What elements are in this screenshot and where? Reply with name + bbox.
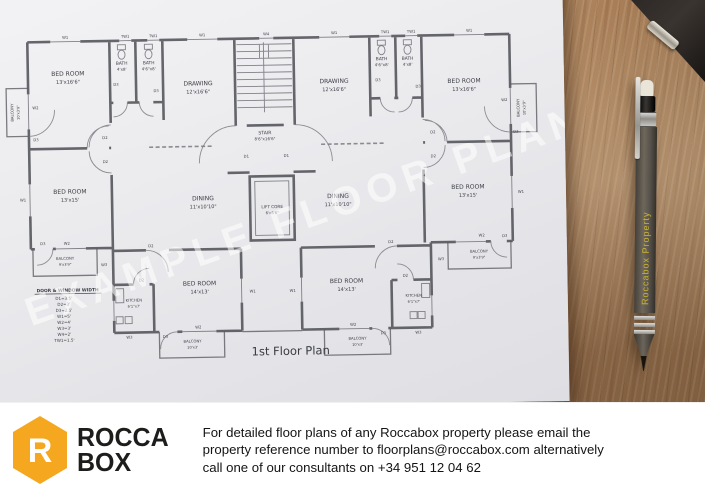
- pencil-ring: [634, 316, 655, 320]
- plan-label: D3: [513, 129, 519, 134]
- plan-label: W3: [415, 330, 422, 335]
- plan-label: 10'x3': [187, 345, 198, 349]
- pencil-clip: [634, 77, 640, 159]
- plan-label: W1: [466, 28, 473, 33]
- plan-label: D2: [403, 273, 409, 278]
- screenshot: BED ROOM13'x16'6"BATH4'x8'BATH4'6"x8'DRA…: [0, 0, 705, 498]
- plan-label: 12'x16'6": [186, 89, 210, 95]
- plan-label: TW1: [380, 29, 390, 34]
- desk-photo: BED ROOM13'x16'6"BATH4'x8'BATH4'6"x8'DRA…: [0, 0, 705, 402]
- plan-label: D3: [153, 88, 159, 93]
- plan-label: BED ROOM: [330, 278, 363, 286]
- plan-label: DRAWING: [183, 80, 213, 88]
- footer-text: For detailed floor plans of any Roccabox…: [203, 424, 604, 475]
- plan-label: W1: [331, 30, 338, 35]
- pencil-collar: [638, 96, 655, 112]
- plan-label: TW1: [148, 33, 158, 38]
- plan-label: 6'1"x7': [128, 304, 141, 308]
- plan-label: BALCONY: [470, 248, 489, 253]
- plan-label: D1=3.5': [55, 296, 72, 301]
- floor-plan-svg: BED ROOM13'x16'6"BATH4'x8'BATH4'6"x8'DRA…: [0, 0, 566, 402]
- plan-label: 12'x16'6": [322, 87, 346, 93]
- pencil-brand-text: Roccabox Property: [640, 185, 651, 305]
- plan-label: W1: [199, 32, 206, 37]
- plan-label: D3: [375, 77, 381, 82]
- plan-label: 8'6"x16'6": [254, 136, 275, 141]
- plan-label: 11'x10'10": [325, 202, 352, 208]
- floor-plan-paper: BED ROOM13'x16'6"BATH4'x8'BATH4'6"x8'DRA…: [0, 0, 570, 402]
- plan-label: D3: [163, 334, 169, 339]
- plan-label: KITCHEN: [126, 297, 143, 302]
- pencil-ring: [633, 330, 654, 334]
- plan-label: D1: [244, 154, 250, 159]
- plan-label: D3: [502, 233, 508, 238]
- plan-label: D3: [381, 330, 387, 335]
- plan-label: D2: [148, 243, 154, 248]
- beam-lines: [149, 143, 385, 147]
- plan-label: 14'x13': [190, 289, 209, 295]
- plan-label: D2: [103, 159, 109, 164]
- plan-label: 9'x3'9": [473, 255, 486, 259]
- footer-bar: R ROCCA BOX For detailed floor plans of …: [0, 402, 705, 498]
- plan-label: 14'x13': [337, 287, 356, 293]
- plan-label: W2: [350, 322, 357, 327]
- footer-text-line3: call one of our consultants on +34 951 1…: [203, 459, 604, 476]
- plan-label: W1: [250, 288, 257, 293]
- plan-label: W2: [64, 241, 71, 246]
- plan-label: 10'x3': [352, 343, 363, 347]
- plan-label: 13'x16'6": [56, 79, 80, 85]
- kitchen-icons: [116, 283, 431, 323]
- plan-label: TW1: [120, 34, 130, 39]
- plan-label: 10'x3'9": [522, 100, 526, 115]
- plan-label: DINING: [327, 193, 349, 200]
- plan-label: DINING: [192, 195, 214, 202]
- pencil-body: Roccabox Property: [634, 127, 657, 313]
- plan-label: DOOR & WINDOW WIDTH: [37, 287, 99, 294]
- plan-label: 4'6"x8': [375, 62, 389, 67]
- plan-label: D2=3': [57, 302, 70, 307]
- plan-labels: BED ROOM13'x16'6"BATH4'x8'BATH4'6"x8'DRA…: [8, 27, 530, 353]
- plan-label: DRAWING: [319, 78, 349, 86]
- plan-label: LIFT CORE: [261, 204, 283, 209]
- pencil-cone: [633, 334, 654, 356]
- plan-label: BED ROOM: [447, 77, 480, 85]
- plan-label: W1: [518, 189, 525, 194]
- plan-label: BALCONY: [515, 98, 520, 117]
- plan-label: D2: [388, 239, 394, 244]
- plan-label: 4'x8': [403, 62, 413, 67]
- plan-label: BED ROOM: [183, 280, 216, 288]
- plan-label: D1: [284, 153, 290, 158]
- pencil-ring: [633, 323, 654, 327]
- wordmark-line1: ROCCA: [77, 425, 169, 450]
- plan-label: 4'6"x8': [142, 66, 156, 71]
- footer-text-line2: property reference number to floorplans@…: [203, 441, 604, 458]
- plan-label: W1: [290, 288, 297, 293]
- roccabox-wordmark: ROCCA BOX: [77, 425, 169, 475]
- plan-label: BED ROOM: [51, 70, 84, 78]
- plan-label: W3: [438, 256, 445, 261]
- plan-title: 1st Floor Plan: [251, 343, 329, 358]
- plan-label: 6'x6'6": [266, 210, 280, 215]
- stair-treads: [236, 42, 292, 113]
- floor-plan-drawing: BED ROOM13'x16'6"BATH4'x8'BATH4'6"x8'DRA…: [0, 0, 566, 402]
- plan-label: BED ROOM: [451, 183, 484, 191]
- plan-label: D2: [139, 277, 145, 282]
- plan-label: W2=4': [57, 320, 71, 325]
- plan-label: 13'x15': [61, 197, 80, 203]
- plan-label: D3: [113, 82, 119, 87]
- plan-label: D3: [40, 241, 46, 246]
- plan-label: 9'x3'9": [59, 263, 72, 267]
- plan-label: W1: [20, 197, 27, 202]
- plan-label: W2: [32, 105, 39, 110]
- plan-label: W2: [501, 97, 508, 102]
- plan-label: D3: [33, 137, 39, 142]
- mechanical-pencil: Roccabox Property: [630, 80, 659, 380]
- plan-label: D2: [102, 135, 108, 140]
- logo-r-glyph: R: [28, 432, 53, 470]
- plan-label: TW1=1.5': [53, 338, 74, 343]
- footer-text-line1: For detailed floor plans of any Roccabox…: [203, 424, 604, 441]
- plan-label: W3: [126, 335, 133, 340]
- plan-label: D3=2.5': [56, 308, 73, 313]
- plan-label: D3: [415, 83, 421, 88]
- plan-label: 13'x16'6": [452, 87, 476, 93]
- roccabox-logo: R ROCCA BOX: [12, 414, 169, 486]
- plan-label: KITCHEN: [405, 293, 422, 298]
- wordmark-line2: BOX: [77, 450, 169, 475]
- plan-label: D2: [430, 129, 436, 134]
- plan-label: 4'x8': [117, 67, 127, 72]
- plan-label: W3=3': [57, 326, 71, 331]
- pencil-tip: [641, 356, 647, 371]
- plan-label: 13'x15': [459, 193, 478, 199]
- plan-label: 6'1"x7': [408, 300, 421, 304]
- plan-label: W4=2': [57, 332, 71, 337]
- plan-label: D2: [431, 153, 437, 158]
- balcony-walls: [6, 79, 541, 360]
- plan-label: W4: [263, 31, 270, 36]
- plan-label: W1: [62, 35, 69, 40]
- roccabox-hexagon-icon: R: [12, 414, 68, 486]
- plan-label: W1=5': [57, 314, 71, 319]
- plan-label: BALCONY: [183, 338, 202, 343]
- plan-label: 11'x10'10": [190, 204, 217, 210]
- plan-label: TW1: [406, 29, 416, 34]
- plan-label: W3: [101, 262, 108, 267]
- plan-label: BALCONY: [56, 256, 75, 261]
- plan-label: W2: [195, 324, 202, 329]
- plan-label: 10'x3'9": [16, 105, 20, 120]
- plan-label: W2: [479, 232, 486, 237]
- plan-label: BALCONY: [348, 335, 367, 340]
- plan-label: BED ROOM: [53, 188, 86, 196]
- plan-label: BALCONY: [9, 103, 14, 122]
- pencil-eraser: [640, 80, 653, 96]
